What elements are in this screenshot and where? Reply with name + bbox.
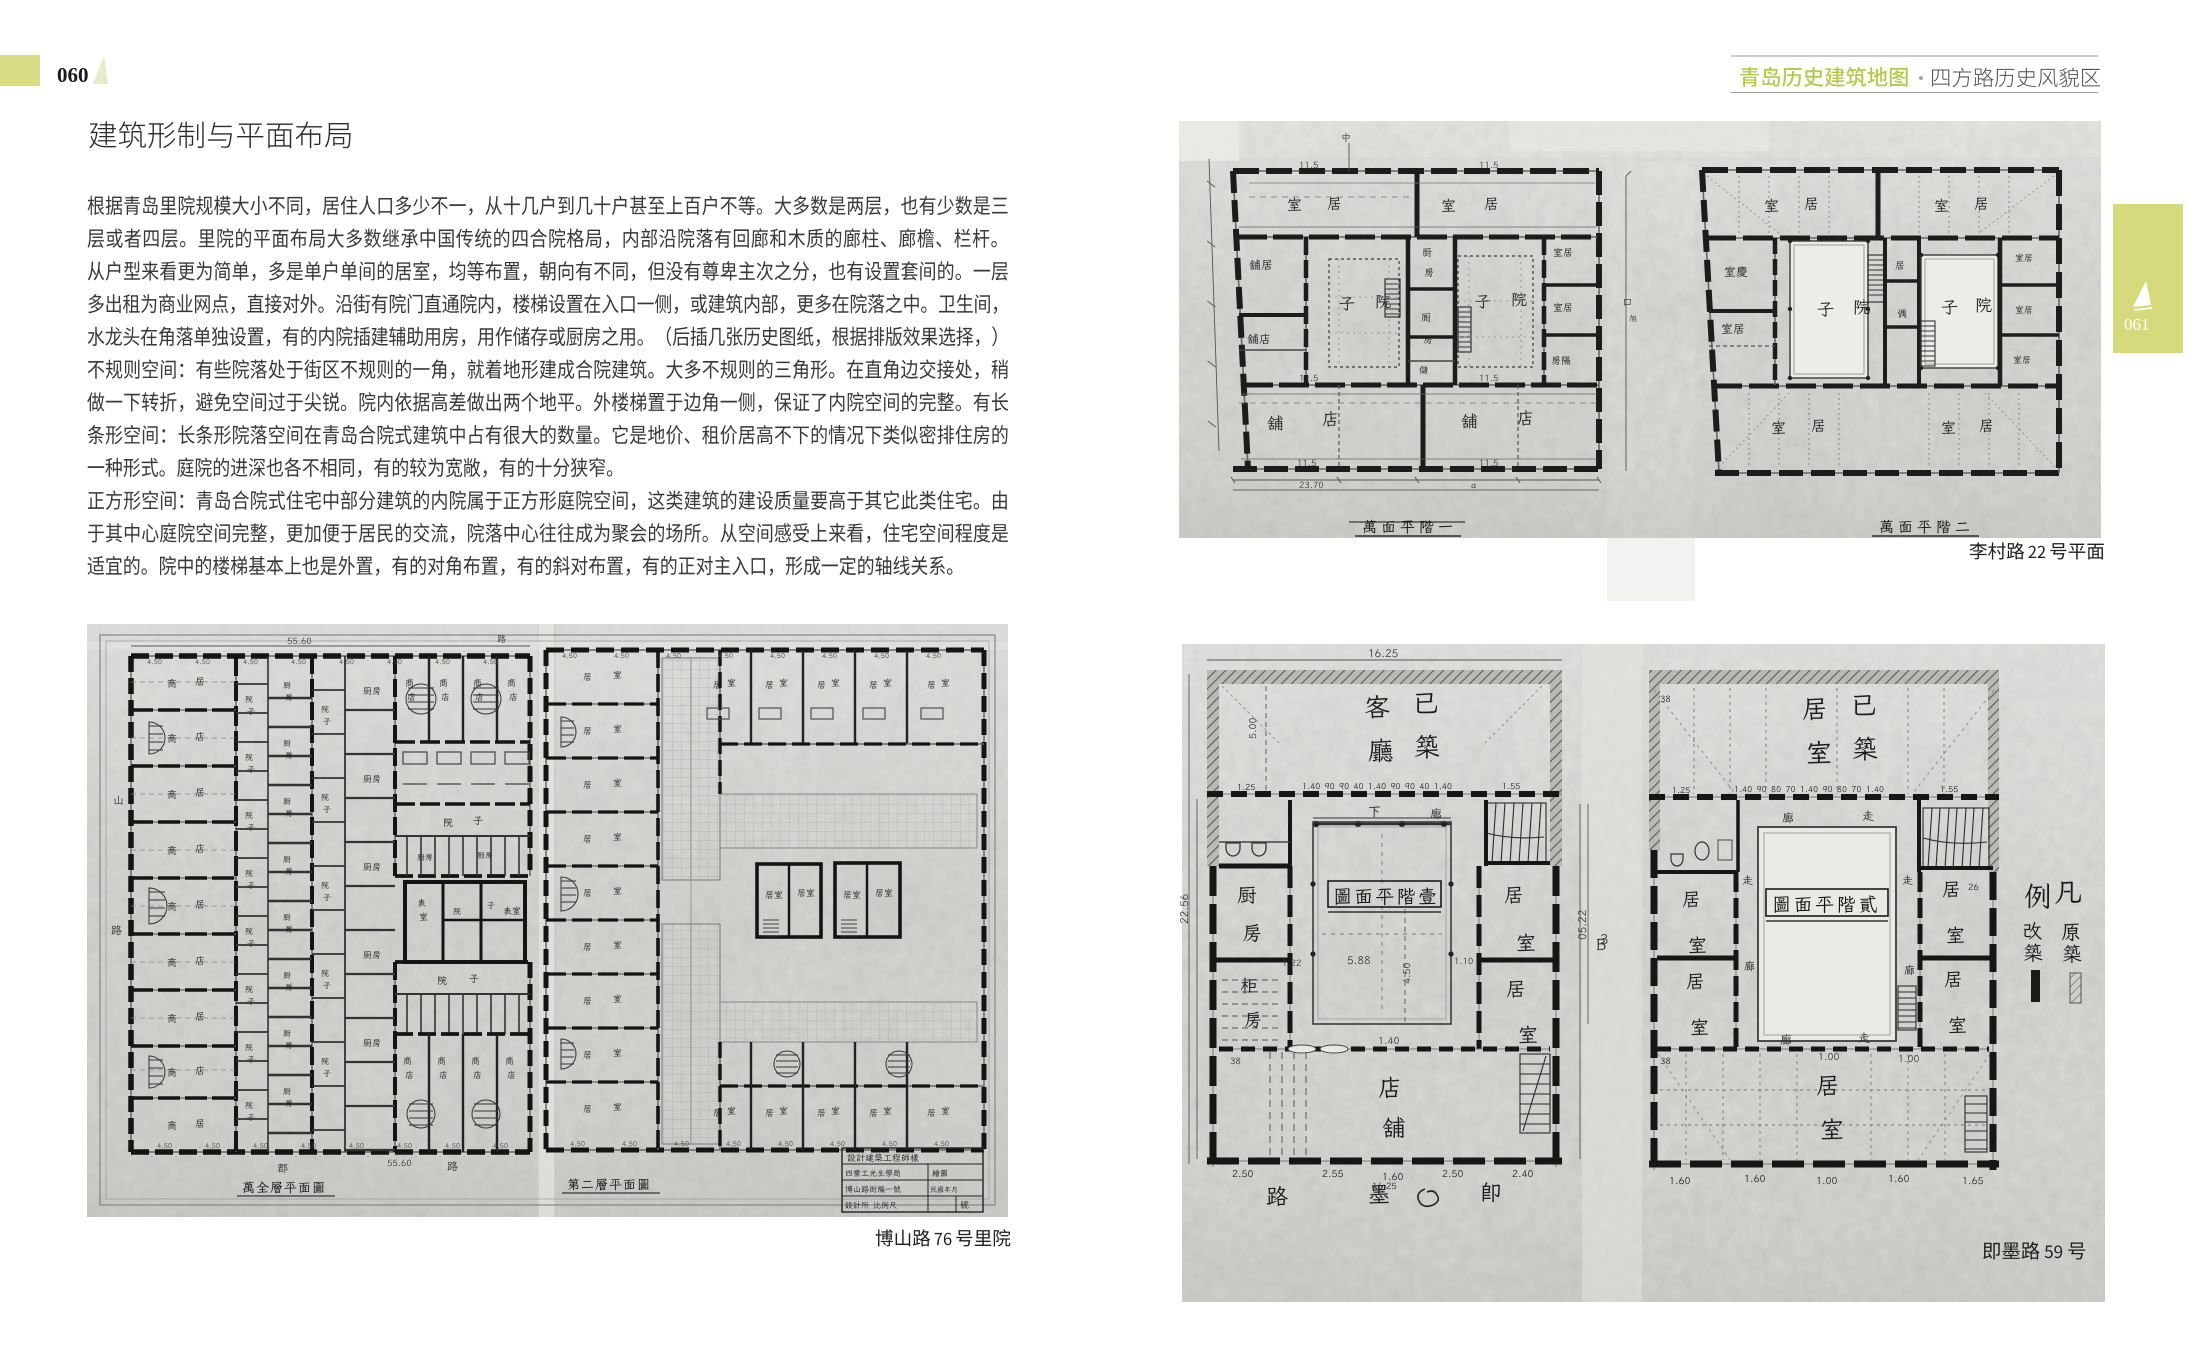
svg-text:061: 061 — [2124, 315, 2150, 334]
svg-text:060: 060 — [57, 63, 89, 87]
